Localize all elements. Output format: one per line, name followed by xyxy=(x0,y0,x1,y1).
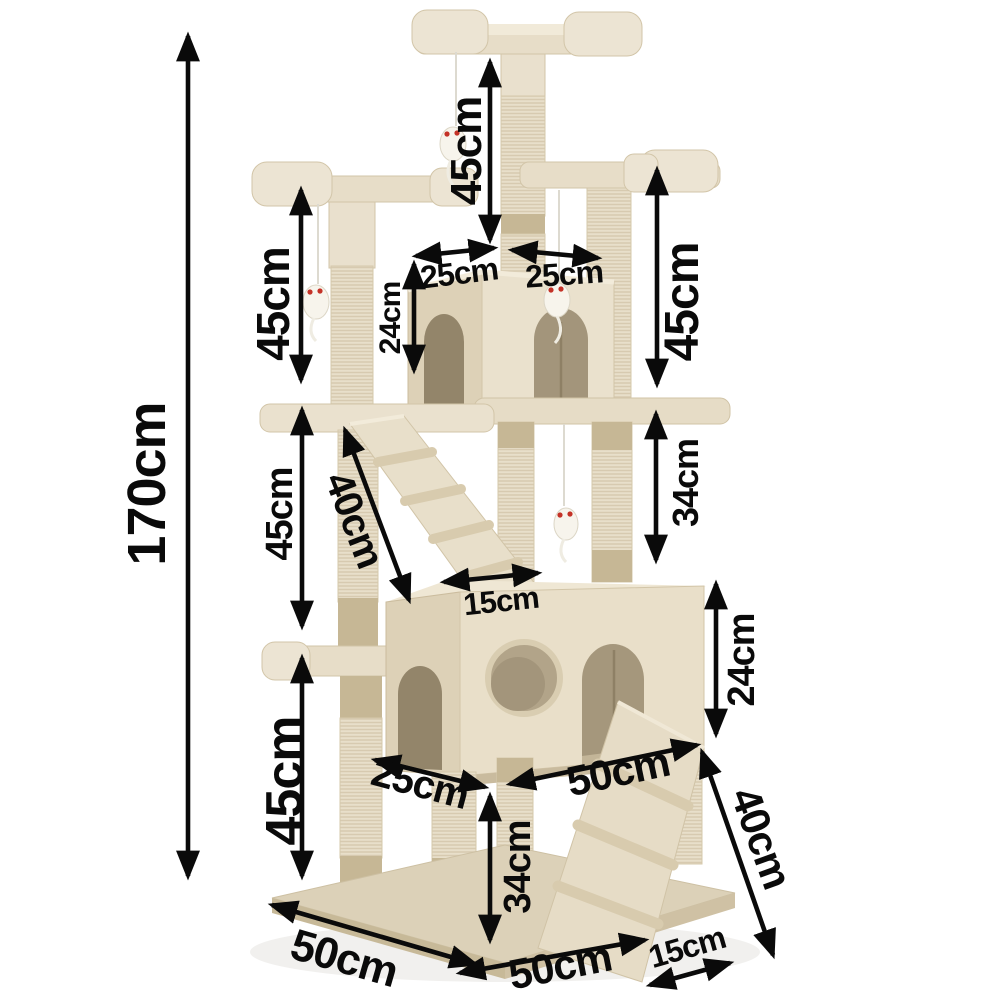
toy-mouse-middle xyxy=(554,424,578,562)
dim-label-middle-left-post-height: 45cm xyxy=(261,467,299,560)
upper-right-perch xyxy=(520,150,720,192)
dim-label-large-condo-height: 24cm xyxy=(723,613,761,706)
product-dimension-diagram: 170cm 45cm 45cm 45cm 25cm 25cm 24cm 45cm… xyxy=(0,0,1000,1000)
dim-label-top-platform-left-width: 25cm xyxy=(418,252,499,293)
dim-label-total-height: 170cm xyxy=(120,402,174,565)
dim-label-small-condo-height: 24cm xyxy=(376,282,406,355)
dim-label-upper-right-post-height: 45cm xyxy=(659,243,707,362)
toy-mouse-left xyxy=(303,204,329,341)
top-perch xyxy=(412,10,642,56)
small-condo-side-arch-opening xyxy=(424,314,464,410)
large-condo-side-arch-opening xyxy=(398,666,442,770)
upper-left-post xyxy=(329,202,375,416)
dim-label-lower-left-post-height: 45cm xyxy=(259,717,311,846)
dim-label-lower-post-height: 34cm xyxy=(499,820,537,913)
dim-label-upper-left-post-height: 45cm xyxy=(250,247,296,361)
lower-left-shelf xyxy=(262,642,400,680)
dim-label-middle-right-post-height: 34cm xyxy=(668,439,704,527)
dim-label-top-platform-right-width: 25cm xyxy=(524,255,604,292)
middle-right-post xyxy=(592,422,632,582)
dim-label-upper-ramp-width: 15cm xyxy=(462,582,540,621)
dim-label-top-post-height: 45cm xyxy=(445,97,489,206)
